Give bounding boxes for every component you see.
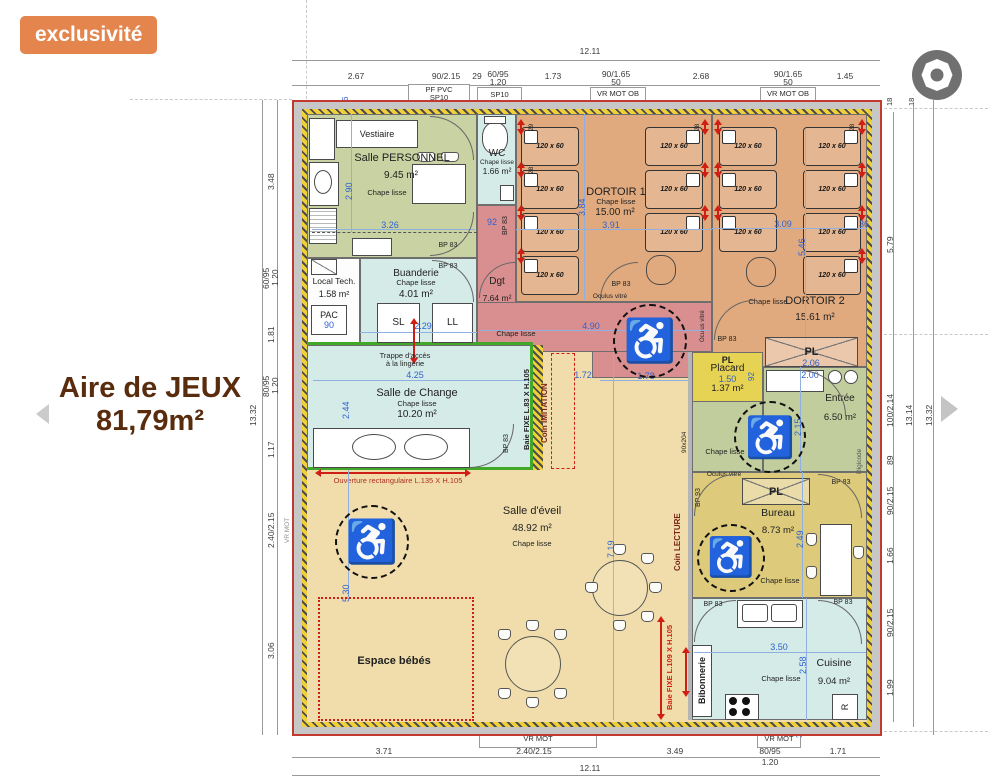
door-ref: BP 83	[433, 242, 463, 250]
guide-line	[884, 334, 988, 335]
dim-left: 1.20	[271, 260, 280, 296]
wheelchair-icon: ♿	[734, 401, 806, 473]
dim-left: 1.20	[271, 368, 280, 404]
dim: 3.84	[577, 192, 587, 222]
bibonnerie-cabinet: Bibonnerie	[692, 645, 712, 717]
dim-line	[292, 60, 880, 61]
dim-bottom: 3.71	[364, 747, 404, 756]
door-ref: BP 83	[502, 212, 510, 240]
dim: 2.90	[344, 175, 354, 207]
dim-line	[360, 332, 477, 333]
pouf	[646, 255, 676, 285]
room-label: Salle de Change	[362, 387, 472, 399]
room-label-vestiaire: Vestiaire	[360, 129, 395, 139]
dim: 2.44	[341, 395, 351, 425]
dim: 3.09	[766, 219, 800, 229]
dim-right: 100/2.14	[886, 385, 895, 435]
dim-line	[694, 652, 866, 653]
room-label: Bureau	[748, 508, 808, 520]
closet: PL	[742, 478, 810, 505]
door-ref: BP 83	[712, 336, 742, 344]
spacing-arrow	[857, 162, 866, 178]
play-area-caption: Aire de JEUX 81,79m²	[48, 372, 252, 439]
dim-line	[292, 775, 880, 776]
chair	[613, 544, 626, 555]
spacing-arrow	[713, 162, 722, 178]
floor-finish: Chape lisse	[486, 330, 546, 338]
sink-bowl	[742, 604, 768, 622]
fixed-window-arrow	[656, 616, 665, 720]
room-label: Salle d'éveil	[492, 505, 572, 517]
desk	[820, 524, 852, 596]
dim-line	[351, 114, 352, 232]
play-area-size: 81,79m²	[48, 405, 252, 438]
burner	[729, 708, 737, 716]
dim-top: 1.45	[825, 72, 865, 81]
dim-right: 18	[886, 94, 894, 110]
zone-arrow	[681, 647, 690, 697]
room-label: Local Tech.	[307, 277, 361, 287]
basin-icon	[314, 170, 332, 194]
dim: 3.91	[593, 220, 629, 230]
bed: 120 x 60	[803, 170, 861, 209]
digicode-label: Digicode	[856, 440, 863, 482]
round-table	[592, 560, 648, 616]
trap-label: Trappe d'accès à la lingerie	[360, 352, 450, 369]
dim-top: 2.68	[681, 72, 721, 81]
spacing-arrow	[857, 119, 866, 135]
dim-left: 1.17	[267, 430, 276, 470]
burner	[729, 697, 737, 705]
room-area: 48.92 m²	[497, 523, 567, 534]
basin-icon	[844, 370, 858, 384]
door-ref: BP 83	[828, 599, 858, 607]
spacing-arrow	[516, 205, 525, 221]
room-area: 15.61 m²	[785, 312, 845, 323]
bed: 120 x 60	[719, 170, 777, 209]
dim-bottom: 80/95	[750, 747, 790, 756]
dim-left: 1.81	[267, 315, 276, 355]
dim-top: 1.20	[478, 78, 518, 87]
dim-right: 18	[908, 94, 916, 110]
dim: 3.50	[762, 642, 796, 652]
zone-label: Coin LECTURE	[674, 500, 683, 584]
chair	[526, 620, 539, 631]
chair	[554, 688, 567, 699]
room-area: 10.20 m²	[383, 409, 451, 420]
floor-finish: Chape lisse	[502, 540, 562, 548]
play-area-title: Aire de JEUX	[48, 372, 252, 405]
dim-right: 5.79	[886, 225, 895, 265]
toilet-tank	[484, 116, 506, 124]
dim: 1.72	[566, 370, 600, 380]
dim-line	[292, 757, 880, 758]
dim: 4.25	[398, 370, 432, 380]
hand-basin	[500, 185, 514, 201]
dim-top: 50	[773, 78, 803, 87]
exclusivity-badge: exclusivité	[20, 16, 157, 54]
chair	[649, 582, 662, 593]
bed: 120 x 60	[521, 213, 579, 252]
chair	[554, 629, 567, 640]
spacing-arrow	[700, 119, 709, 135]
dim-right: 89	[886, 448, 895, 472]
basin-icon	[352, 434, 396, 460]
round-table	[505, 636, 561, 692]
chair	[806, 566, 817, 579]
bed: 120 x 60	[719, 127, 777, 166]
zone-label: Espace bébés	[330, 655, 458, 667]
dim: 92	[480, 217, 504, 227]
dim-left: 2.40/2.15	[267, 500, 276, 560]
basin-icon	[404, 434, 448, 460]
dim-top-overall: 12.11	[560, 47, 620, 56]
dim-top: 2.67	[336, 72, 376, 81]
spacing-value: 28	[849, 119, 856, 135]
dim: 2.49	[795, 524, 805, 554]
fixed-window-label: Baie FIXE L.109 X H.105	[666, 612, 674, 722]
carousel-next-arrow-icon[interactable]	[941, 396, 958, 422]
chair	[498, 688, 511, 699]
room-area: 9.45 m²	[368, 170, 434, 181]
dim-bottom-overall: 12.11	[560, 764, 620, 773]
zone-label: Coin IMITATION	[541, 365, 550, 461]
dim-top: 1.73	[533, 72, 573, 81]
door-size: 90x204	[681, 422, 688, 462]
guide-line	[884, 108, 988, 109]
dim-bottom: 1.71	[818, 747, 858, 756]
door-ref: BP 83	[698, 601, 728, 609]
guide-line	[884, 731, 988, 732]
dim-left-overall: 13.32	[249, 390, 258, 440]
spacing-value: 28	[528, 162, 535, 178]
bed: 120 x 60	[803, 256, 861, 295]
dim-right-inner: 13.14	[905, 392, 914, 438]
oculus-label: Oculus vitré	[586, 293, 634, 300]
spacing-value: 28	[694, 119, 701, 135]
dim-bottom: 3.49	[655, 747, 695, 756]
room-label: Cuisine	[810, 658, 858, 670]
chair	[613, 620, 626, 631]
shelves	[309, 208, 337, 244]
dim-right-overall: 13.32	[925, 390, 934, 440]
room-area: 15.00 m²	[580, 207, 650, 218]
spacing-arrow	[857, 248, 866, 264]
room-area: 1.58 m²	[307, 289, 361, 299]
floor-finish: Chape lisse	[752, 577, 808, 585]
floor-finish: Chape lisse	[357, 189, 417, 197]
kitchenette	[309, 118, 335, 160]
room-label: WC	[480, 148, 514, 159]
guide-line	[130, 99, 292, 100]
dim-right: 90/2.15	[886, 478, 895, 523]
dim: 4.90	[575, 321, 607, 331]
electrical-panel	[311, 259, 337, 275]
dim-right: 1.66	[886, 536, 895, 576]
dim-line	[277, 100, 278, 735]
spacing-arrow	[516, 119, 525, 135]
chair	[526, 697, 539, 708]
wheelchair-icon: ♿	[613, 304, 687, 378]
dim-line	[313, 380, 531, 381]
dim: 3.26	[372, 220, 408, 230]
dim-line	[262, 100, 263, 735]
spacing-arrow	[516, 162, 525, 178]
room-area: 1.66 m²	[477, 167, 517, 177]
dim-right: 90/2.15	[886, 600, 895, 645]
photo-camera-icon[interactable]	[911, 49, 963, 101]
dim: 92	[748, 366, 757, 388]
dim-top: 90/2.15	[421, 72, 471, 81]
chair	[585, 582, 598, 593]
spacing-arrow	[700, 205, 709, 221]
floor-finish: Chape lisse	[584, 198, 648, 206]
dim-top: 50	[601, 78, 631, 87]
chair	[641, 553, 654, 564]
floor-finish: Chape lisse	[385, 400, 449, 408]
oculus-label: Oculus vitré	[700, 306, 707, 346]
dim: 5.46	[797, 232, 807, 262]
partition-line	[307, 342, 533, 345]
dim-left: 3.48	[267, 162, 276, 202]
chair	[498, 629, 511, 640]
fridge: R	[832, 694, 858, 720]
door-ref: BP 83	[503, 430, 511, 458]
dim: 36	[852, 219, 876, 229]
wheelchair-icon: ♿	[335, 505, 409, 579]
chair	[641, 611, 654, 622]
carousel-prev-arrow-icon[interactable]	[36, 404, 49, 424]
burner	[742, 708, 750, 716]
burner	[742, 697, 750, 705]
spacing-arrow	[516, 248, 525, 264]
sink-bowl	[771, 604, 797, 622]
chair	[806, 533, 817, 546]
opening-label: Ouverture rectangulaire L.135 X H.105	[323, 477, 473, 485]
spacing-arrow	[700, 162, 709, 178]
spacing-arrow	[713, 119, 722, 135]
room-area: 9.04 m²	[810, 677, 858, 688]
dim-bottom: 1.20	[750, 758, 790, 767]
floorplan-page: exclusivité Aire de JEUX 81,79m² 12.11 2…	[0, 0, 988, 784]
bed: 120 x 60	[645, 213, 703, 252]
threshold-sub: VR MOT	[284, 508, 291, 552]
wardrobe: Vestiaire	[336, 120, 418, 148]
fixed-window-label: Baie FIXE L.83 X H.105	[523, 352, 531, 468]
heat-pump: PAC 90	[311, 305, 347, 335]
floor-finish: Chape lisse	[753, 675, 809, 683]
counter	[352, 238, 392, 256]
dim-bottom: 2.40/2.15	[504, 747, 564, 756]
door-ref: BP 83	[606, 281, 636, 289]
door-ref: BP 83	[433, 263, 463, 271]
chair	[853, 546, 864, 559]
spacing-value: 29	[528, 119, 535, 135]
spacing-arrow	[713, 205, 722, 221]
dim-left: 3.06	[267, 631, 276, 671]
bed: 120 x 60	[521, 256, 579, 295]
pouf	[746, 257, 776, 287]
dim-right: 1.99	[886, 668, 895, 708]
